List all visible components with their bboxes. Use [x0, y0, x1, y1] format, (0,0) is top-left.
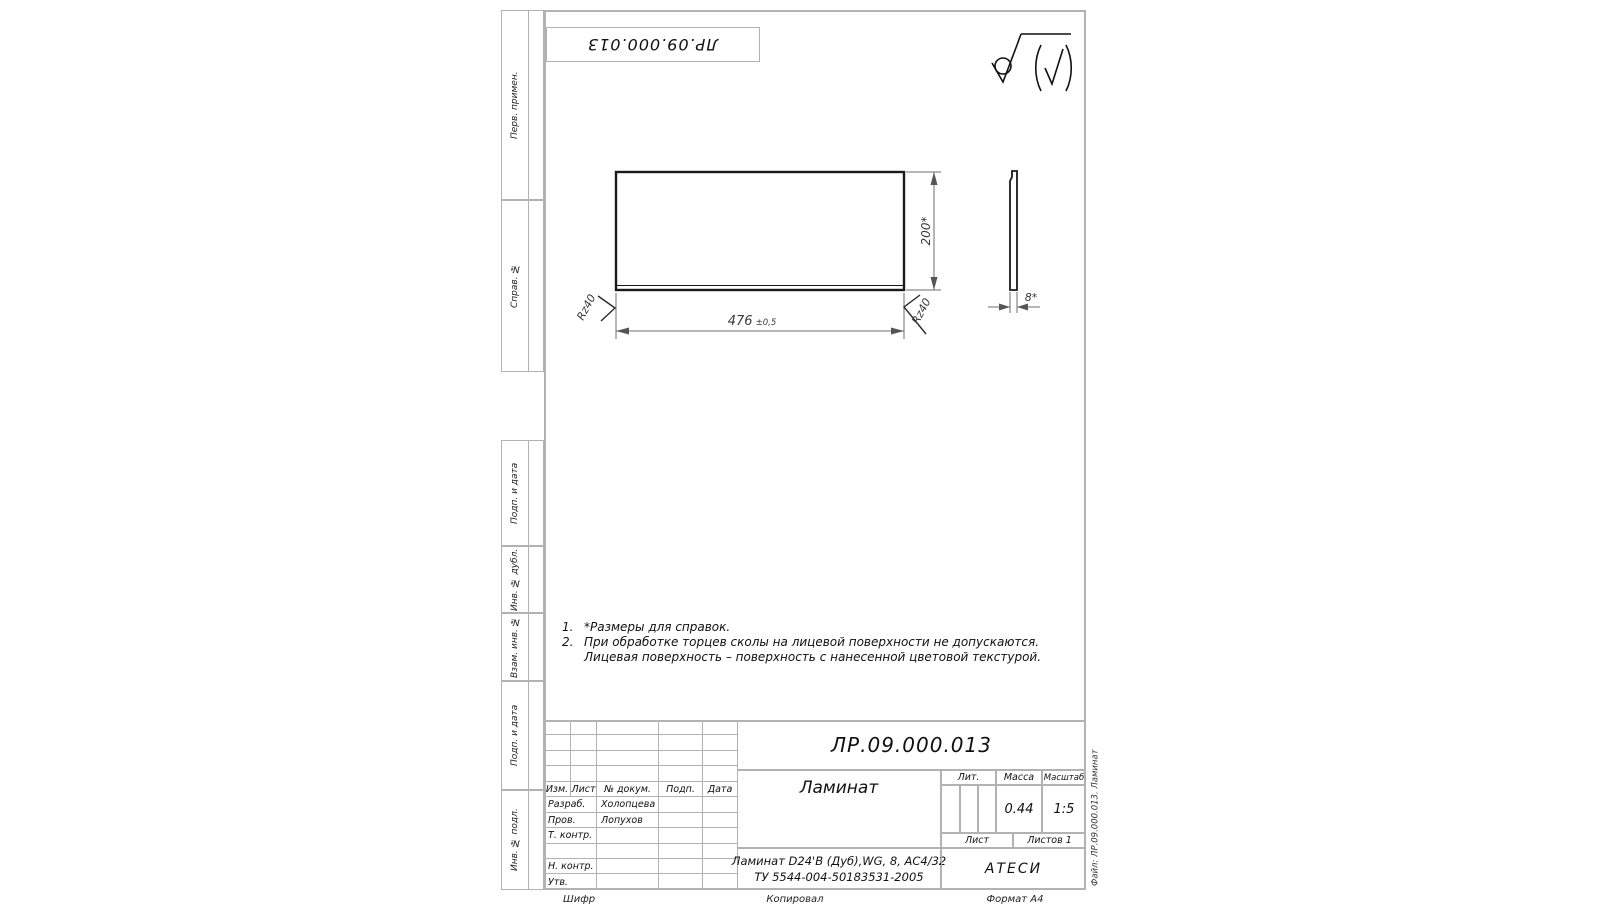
table-row [544, 844, 737, 859]
table-cell [597, 874, 659, 890]
mass-value-cell: 0.44 [996, 785, 1042, 833]
note-2-text-line1: При обработке торцев сколы на лицевой по… [584, 635, 1039, 649]
table-cell [597, 859, 659, 874]
note-1-number: 1. [562, 620, 573, 634]
dim-width-text: 476 ±0,5 [700, 313, 804, 329]
table-cell [703, 813, 737, 828]
material-line1: Ламинат D24'В (Дуб),WG, 8, АС4/32 [732, 854, 946, 868]
table-cell [571, 735, 597, 751]
company-cell: АТЕСИ [941, 848, 1086, 890]
lit-header-cell: Лит. [941, 770, 996, 785]
sheet-label: Лист [965, 835, 989, 846]
dim-width-tolerance: ±0,5 [756, 318, 777, 329]
company-name: АТЕСИ [985, 861, 1042, 877]
role-label: Т. контр. [544, 828, 597, 844]
col-header-list: Лист [571, 782, 597, 797]
col-header-izm: Изм. [544, 782, 571, 797]
role-label: Пров. [544, 813, 597, 828]
table-cell [659, 720, 703, 735]
table-cell [571, 751, 597, 766]
table-header-row: Изм. Лист № докум. Подп. Дата [544, 782, 737, 797]
sheets-total-label: Листов 1 [1027, 835, 1072, 846]
table-cell [703, 828, 737, 844]
note-1-text: *Размеры для справок. [584, 620, 730, 634]
dim-width-value: 476 [728, 314, 753, 329]
table-cell [703, 766, 737, 782]
table-row [544, 735, 737, 751]
table-row-razrab: Разраб. Холопцева [544, 797, 737, 813]
table-cell [544, 720, 571, 735]
material-line2: ТУ 5544-004-50183531-2005 [754, 870, 923, 884]
cipher-label: Шифр [563, 894, 595, 905]
table-row-prov: Пров. Лопухов [544, 813, 737, 828]
table-cell [659, 859, 703, 874]
dim-thickness-text: 8* [1018, 291, 1044, 304]
table-cell [597, 828, 659, 844]
roughness-rest-surfaces-icon [1036, 45, 1072, 91]
table-cell [659, 751, 703, 766]
mass-label: Масса [1004, 772, 1034, 783]
table-cell [597, 751, 659, 766]
table-row [544, 720, 737, 735]
engineering-drawing-sheet: Перв. примен. Справ. № Подп. и дата Инв.… [0, 0, 1609, 917]
copied-label: Копировал [750, 894, 840, 905]
table-cell [544, 766, 571, 782]
lit-label: Лит. [958, 772, 980, 783]
table-cell [703, 874, 737, 890]
sheets-total-cell: Листов 1 [1013, 833, 1086, 848]
lit-sub-cell [960, 785, 978, 833]
table-cell [597, 844, 659, 859]
table-row-tkontr: Т. контр. [544, 828, 737, 844]
table-cell [703, 735, 737, 751]
lit-sub-cell [941, 785, 960, 833]
table-cell [571, 766, 597, 782]
table-cell [703, 751, 737, 766]
table-cell [659, 735, 703, 751]
note-2-number: 2. [562, 635, 573, 649]
file-note: Файл: ЛР.09.000.013. Ламинат [1089, 746, 1102, 890]
table-cell [703, 720, 737, 735]
table-row-utv: Утв. [544, 874, 737, 890]
table-cell [703, 797, 737, 813]
mass-value: 0.44 [1005, 802, 1034, 817]
table-cell [544, 735, 571, 751]
part-name-text: Ламинат [800, 778, 879, 847]
table-cell [659, 766, 703, 782]
table-cell [571, 720, 597, 735]
role-name: Лопухов [597, 813, 659, 828]
table-cell [597, 720, 659, 735]
side-view [1010, 171, 1017, 290]
table-row [544, 751, 737, 766]
col-header-doc: № докум. [597, 782, 659, 797]
sheet-cell: Лист [941, 833, 1013, 848]
designation-cell: ЛР.09.000.013 [737, 720, 1086, 770]
scale-value-cell: 1:5 [1042, 785, 1086, 833]
col-header-podp: Подп. [659, 782, 703, 797]
table-cell [659, 874, 703, 890]
role-label: Утв. [544, 874, 597, 890]
scale-value: 1:5 [1054, 802, 1075, 817]
scale-header-cell: Масштаб [1042, 770, 1086, 785]
table-cell [659, 844, 703, 859]
material-cell: Ламинат D24'В (Дуб),WG, 8, АС4/32 ТУ 554… [737, 848, 941, 890]
table-row [544, 766, 737, 782]
title-block-change-table: Изм. Лист № докум. Подп. Дата Разраб. Хо… [544, 720, 737, 890]
table-cell [544, 751, 571, 766]
format-label: Формат А4 [975, 894, 1055, 905]
table-cell [544, 844, 597, 859]
role-label: Разраб. [544, 797, 597, 813]
lit-sub-cell [978, 785, 996, 833]
role-label: Н. контр. [544, 859, 597, 874]
table-row-nkontr: Н. контр. [544, 859, 737, 874]
table-cell [597, 735, 659, 751]
role-name: Холопцева [597, 797, 659, 813]
designation-text: ЛР.09.000.013 [831, 733, 992, 757]
mass-header-cell: Масса [996, 770, 1042, 785]
table-cell [659, 828, 703, 844]
table-cell [597, 766, 659, 782]
roughness-mark-left-icon [598, 296, 615, 321]
note-2-text-line2: Лицевая поверхность – поверхность с нане… [584, 650, 1041, 664]
table-cell [659, 813, 703, 828]
part-name-cell: Ламинат [737, 770, 941, 848]
scale-label: Масштаб [1044, 773, 1084, 783]
col-header-data: Дата [703, 782, 737, 797]
roughness-unspecified-icon [992, 34, 1071, 82]
table-cell [659, 797, 703, 813]
dim-height-text: 200* [919, 201, 933, 261]
front-view [616, 172, 904, 290]
